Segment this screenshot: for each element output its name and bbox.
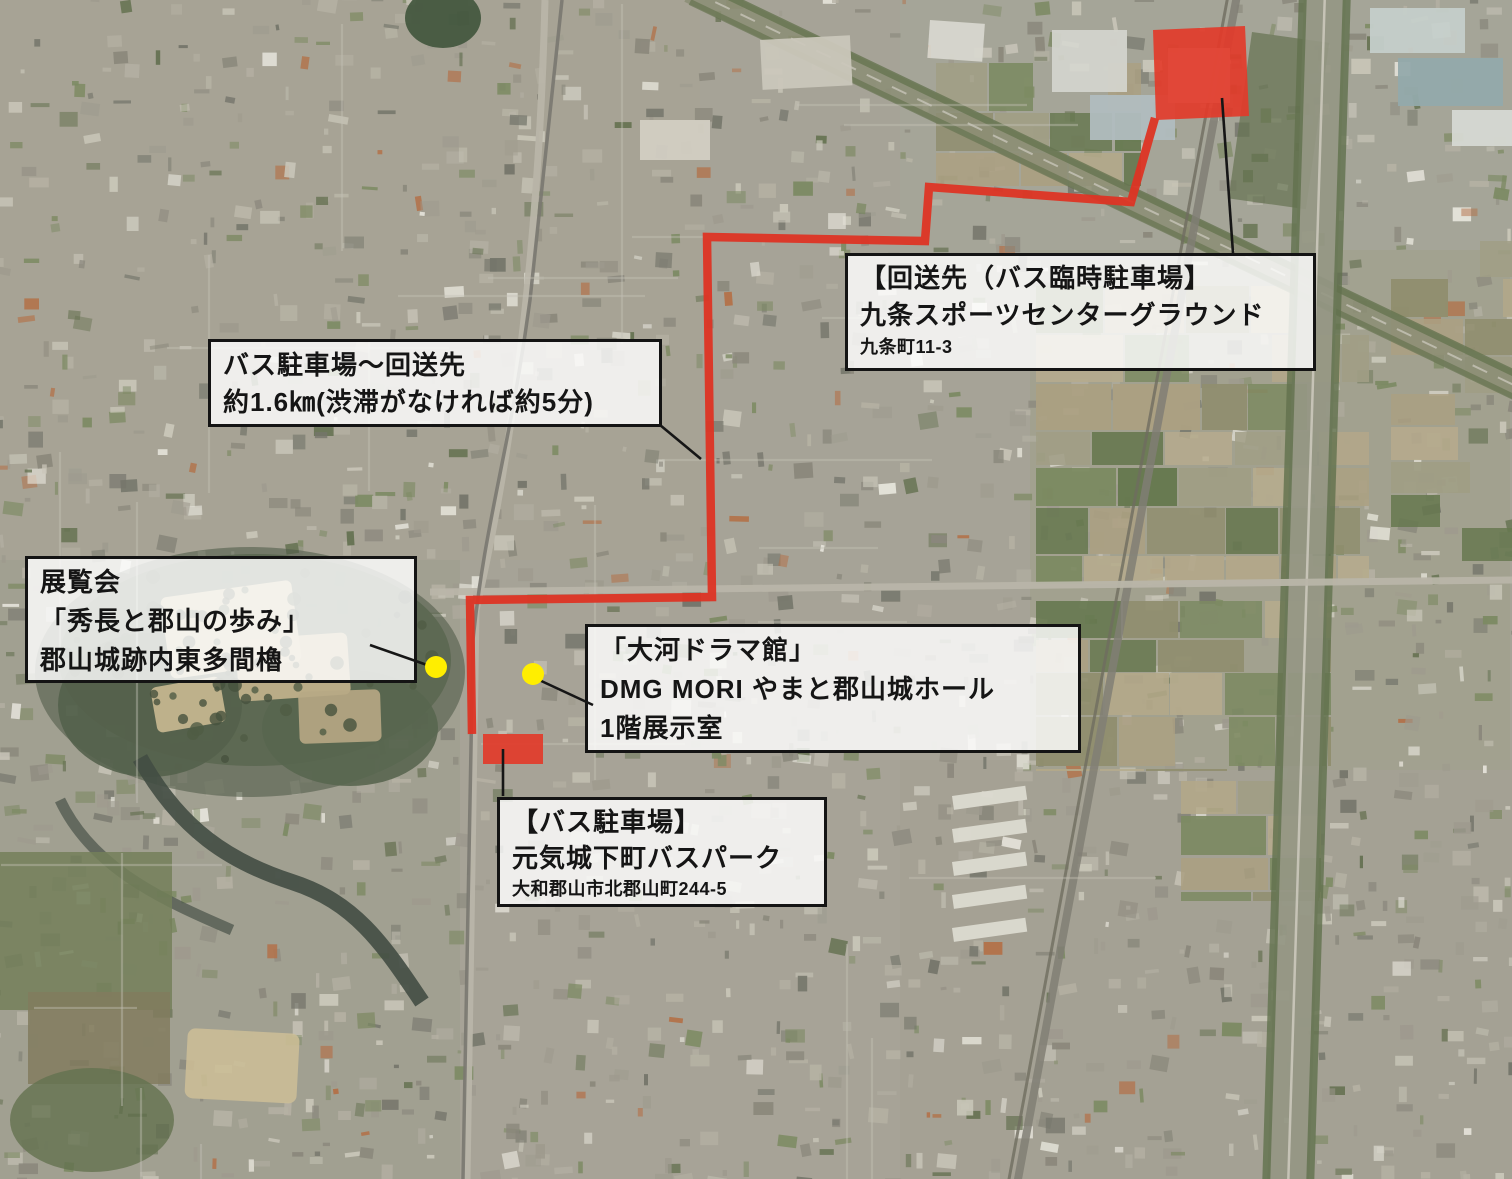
label-exhibition: 展覧会 「秀長と郡山の歩み」 郡山城跡内東多間櫓 bbox=[25, 556, 417, 683]
label-drama-hall-line2: DMG MORI やまと郡山城ホール bbox=[600, 670, 1066, 709]
label-route-distance: バス駐車場～回送先 約1.6㎞(渋滞がなければ約5分) bbox=[208, 339, 662, 427]
label-drama-hall-line3: 1階展示室 bbox=[600, 709, 1066, 748]
label-bus-destination-line2: 九条スポーツセンターグラウンド bbox=[860, 297, 1301, 334]
label-drama-hall: 「大河ドラマ館」 DMG MORI やまと郡山城ホール 1階展示室 bbox=[585, 624, 1081, 753]
label-bus-destination-line1: 【回送先（バス臨時駐車場】 bbox=[860, 260, 1301, 297]
label-exhibition-line3: 郡山城跡内東多間櫓 bbox=[40, 641, 402, 680]
label-bus-parking-address: 大和郡山市北郡山町244-5 bbox=[512, 876, 812, 903]
label-route-distance-line1: バス駐車場～回送先 bbox=[223, 347, 647, 384]
label-drama-hall-line1: 「大河ドラマ館」 bbox=[600, 631, 1066, 670]
label-exhibition-line2: 「秀長と郡山の歩み」 bbox=[40, 602, 402, 641]
label-bus-parking-line2: 元気城下町バスパーク bbox=[512, 840, 812, 876]
label-route-distance-line2: 約1.6㎞(渋滞がなければ約5分) bbox=[223, 384, 647, 421]
label-bus-destination-address: 九条町11-3 bbox=[860, 334, 1301, 361]
label-exhibition-line1: 展覧会 bbox=[40, 563, 402, 602]
label-bus-parking: 【バス駐車場】 元気城下町バスパーク 大和郡山市北郡山町244-5 bbox=[497, 797, 827, 907]
map-viewport: 展覧会 「秀長と郡山の歩み」 郡山城跡内東多間櫓 バス駐車場～回送先 約1.6㎞… bbox=[0, 0, 1512, 1179]
label-bus-parking-line1: 【バス駐車場】 bbox=[512, 804, 812, 840]
label-bus-destination: 【回送先（バス臨時駐車場】 九条スポーツセンターグラウンド 九条町11-3 bbox=[845, 253, 1316, 371]
